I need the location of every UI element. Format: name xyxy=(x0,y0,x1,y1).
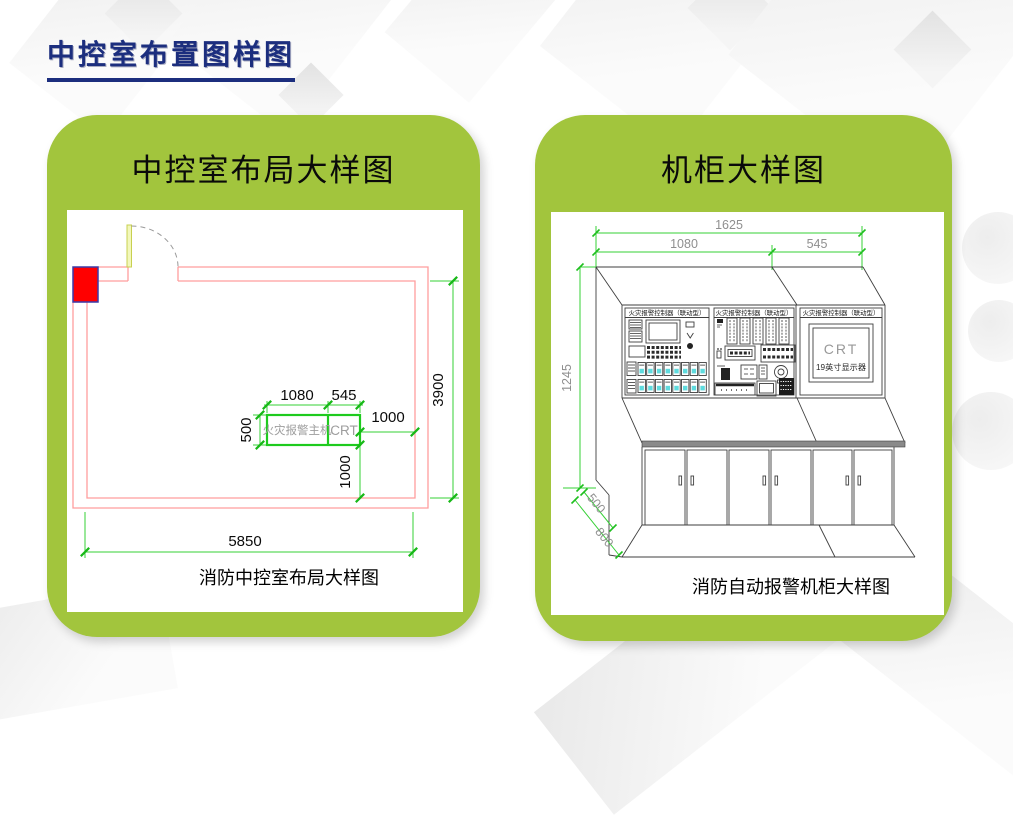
crt-title: CRT xyxy=(824,341,859,357)
control-room-layout-card: 中控室布局大样图 火灾报警主机 CRT xyxy=(47,115,480,637)
cabinet-top-dimensions: 1625 1080 545 xyxy=(593,218,866,270)
left-panel-instruments xyxy=(627,320,706,393)
cabinet-caption: 消防自动报警机柜大样图 xyxy=(692,577,890,598)
desk-edge-strip xyxy=(642,441,905,447)
dim-545: 545 xyxy=(331,387,356,404)
cabinet-canvas: 1625 1080 545 1245 火灾报警控制器（联动型 xyxy=(551,212,944,615)
cabinet-doors xyxy=(645,450,892,525)
dim-1080: 1080 xyxy=(280,387,313,404)
dim-500: 500 xyxy=(238,417,255,442)
deco-shape xyxy=(385,0,566,103)
dim-1080-cab: 1080 xyxy=(670,237,698,251)
dim-1000-right: 1000 xyxy=(371,409,404,426)
equipment-label: 火灾报警主机 xyxy=(263,423,332,437)
column-red xyxy=(73,267,98,302)
equipment-box: 火灾报警主机 CRT xyxy=(263,415,361,445)
dim-1000-bottom: 1000 xyxy=(337,455,354,488)
deco-shape xyxy=(968,300,1013,362)
room-walls xyxy=(73,267,428,508)
equipment-crt-label: CRT xyxy=(330,423,358,438)
dim-3900: 3900 xyxy=(430,373,447,406)
plan-dimensions: 1080 545 500 1000 1000 3900 5850 xyxy=(81,277,459,558)
door-leaf xyxy=(127,225,132,267)
floor-plan-drawing: 火灾报警主机 CRT 1080 545 500 1000 1000 xyxy=(67,210,463,612)
panel-header-right: 火灾报警控制器（联动型） xyxy=(803,308,880,317)
dim-545-cab: 545 xyxy=(807,237,828,251)
door-swing-arc xyxy=(132,226,179,267)
dim-1625: 1625 xyxy=(715,218,743,232)
cabinet-depth-dimensions: 500 800 xyxy=(572,489,623,559)
cabinet-detail-card: 机柜大样图 xyxy=(535,115,952,641)
deco-shape xyxy=(952,392,1013,470)
crt-subtitle: 19英寸显示器 xyxy=(816,362,866,372)
crt-panel: CRT 19英寸显示器 xyxy=(809,324,873,382)
floor-plan-caption: 消防中控室布局大样图 xyxy=(199,568,379,589)
middle-panel-instruments xyxy=(715,318,795,396)
dim-500-depth: 500 xyxy=(584,491,608,516)
floor-plan-canvas: 火灾报警主机 CRT 1080 545 500 1000 1000 xyxy=(67,210,463,612)
dim-1245: 1245 xyxy=(560,364,574,392)
panel-header-left: 火灾报警控制器（联动型） xyxy=(629,308,706,317)
cabinet-drawing: 1625 1080 545 1245 火灾报警控制器（联动型 xyxy=(551,212,944,615)
dim-5850: 5850 xyxy=(228,533,261,550)
panel-header-middle: 火灾报警控制器（联动型） xyxy=(716,308,793,317)
deco-shape xyxy=(962,212,1013,284)
cabinet-height-dimension: 1245 xyxy=(560,264,596,492)
right-card-heading: 机柜大样图 xyxy=(535,155,952,186)
page-title: 中控室布置图样图 xyxy=(47,33,295,82)
left-card-heading: 中控室布局大样图 xyxy=(47,155,480,186)
